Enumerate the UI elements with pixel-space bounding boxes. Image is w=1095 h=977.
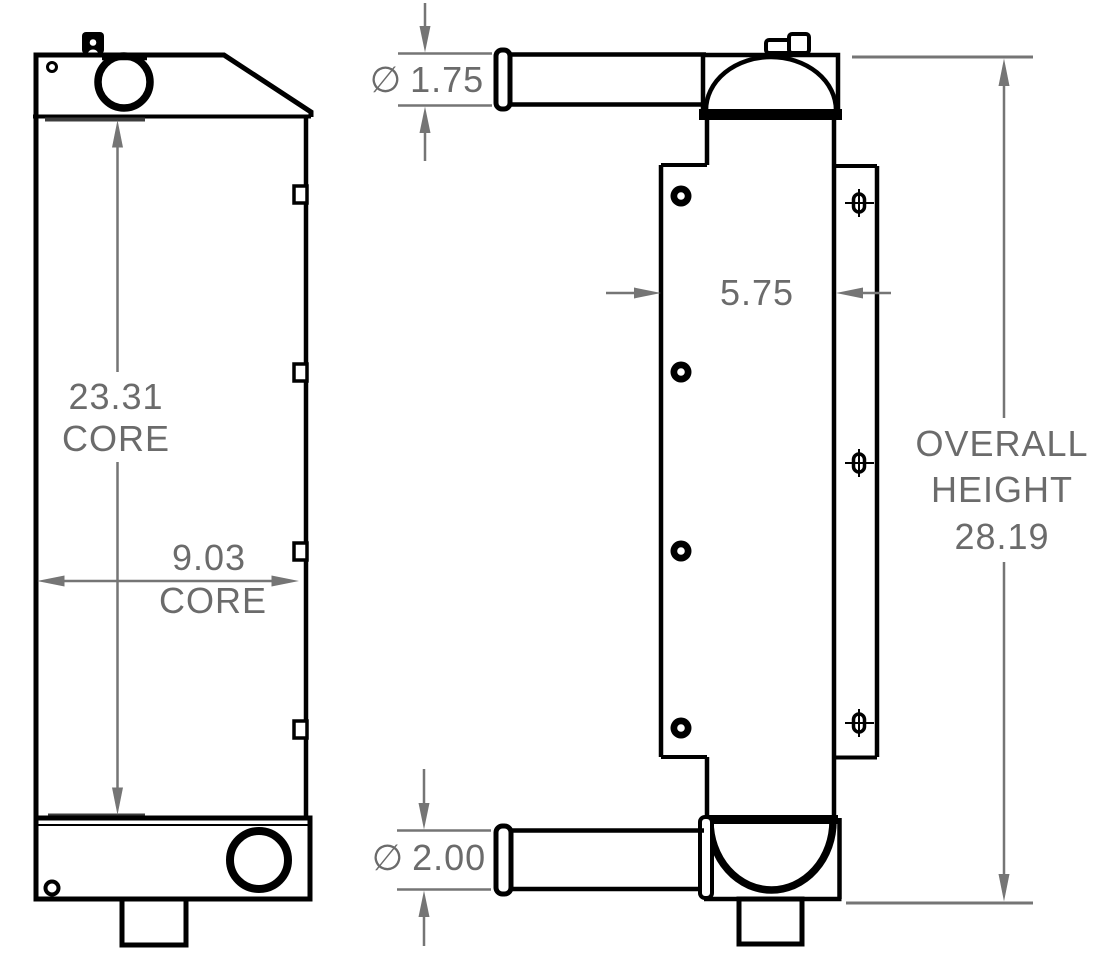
front-view [33,32,311,945]
vent-hole [48,63,57,72]
arrowhead-down [112,788,123,816]
bottom-tank-dome [710,821,833,890]
dimension-core-height [112,120,123,815]
right-mounting-plate [834,166,877,758]
side-bottom-tank [700,815,842,899]
left-mounting-plate [661,165,707,757]
drawing-sheet: 23.31 CORE 9.03 CORE ∅1.75 ∅2.00 5.75 OV… [0,0,1095,977]
core-height-value: 23.31 [68,379,163,415]
arrowhead-down [999,874,1010,902]
overall-height-word2: HEIGHT [931,472,1073,508]
arrowhead-down [419,803,430,830]
drain-plug-circle [46,882,59,895]
core-height-label: CORE [62,421,170,457]
outlet-pipe [496,826,704,894]
top-tank-band [699,109,842,120]
arrowhead-left [836,288,863,299]
diameter-symbol: ∅ [372,837,404,878]
side-top-tank [703,55,838,112]
front-top-tank [36,55,311,117]
arrowhead-left [37,576,65,587]
arrowhead-up [999,59,1010,87]
side-clip [294,721,307,738]
mounting-holes [671,186,692,739]
arrowhead-up [420,107,431,134]
arrowhead-down [420,26,431,53]
outlet-diameter-callout: ∅2.00 [372,840,486,876]
outlet-circle [230,831,288,889]
arrowhead-right [272,576,300,587]
inlet-diameter-value: 1.75 [410,59,484,100]
outlet-diameter-value: 2.00 [412,837,486,878]
side-view [496,34,877,944]
bottom-tank-band [706,815,838,824]
front-mounting-bracket [122,899,186,945]
arrowhead-right [634,288,661,299]
mounting-slot [845,709,874,737]
mounting-slot [845,189,874,217]
side-clip [294,543,307,560]
inlet-pipe-bead [496,50,510,109]
overall-height-value: 28.19 [954,519,1049,555]
top-tank-dome [706,57,836,110]
outlet-pipe-bead [496,826,511,894]
side-clip [294,364,307,381]
diameter-symbol: ∅ [370,59,402,100]
inlet-pipe [496,50,706,109]
mounting-slot [845,449,874,477]
arrowhead-up [419,891,430,918]
side-mounting-bracket [739,899,802,944]
core-width-value: 9.03 [172,540,246,576]
side-clip [294,186,307,203]
inlet-diameter-callout: ∅1.75 [370,62,484,98]
filler-neck-circle [98,56,150,108]
depth-value: 5.75 [720,275,794,311]
arrowhead-up [112,120,123,148]
overall-height-word1: OVERALL [915,426,1088,462]
radiator-cap [766,34,809,53]
core-width-label: CORE [159,583,267,619]
